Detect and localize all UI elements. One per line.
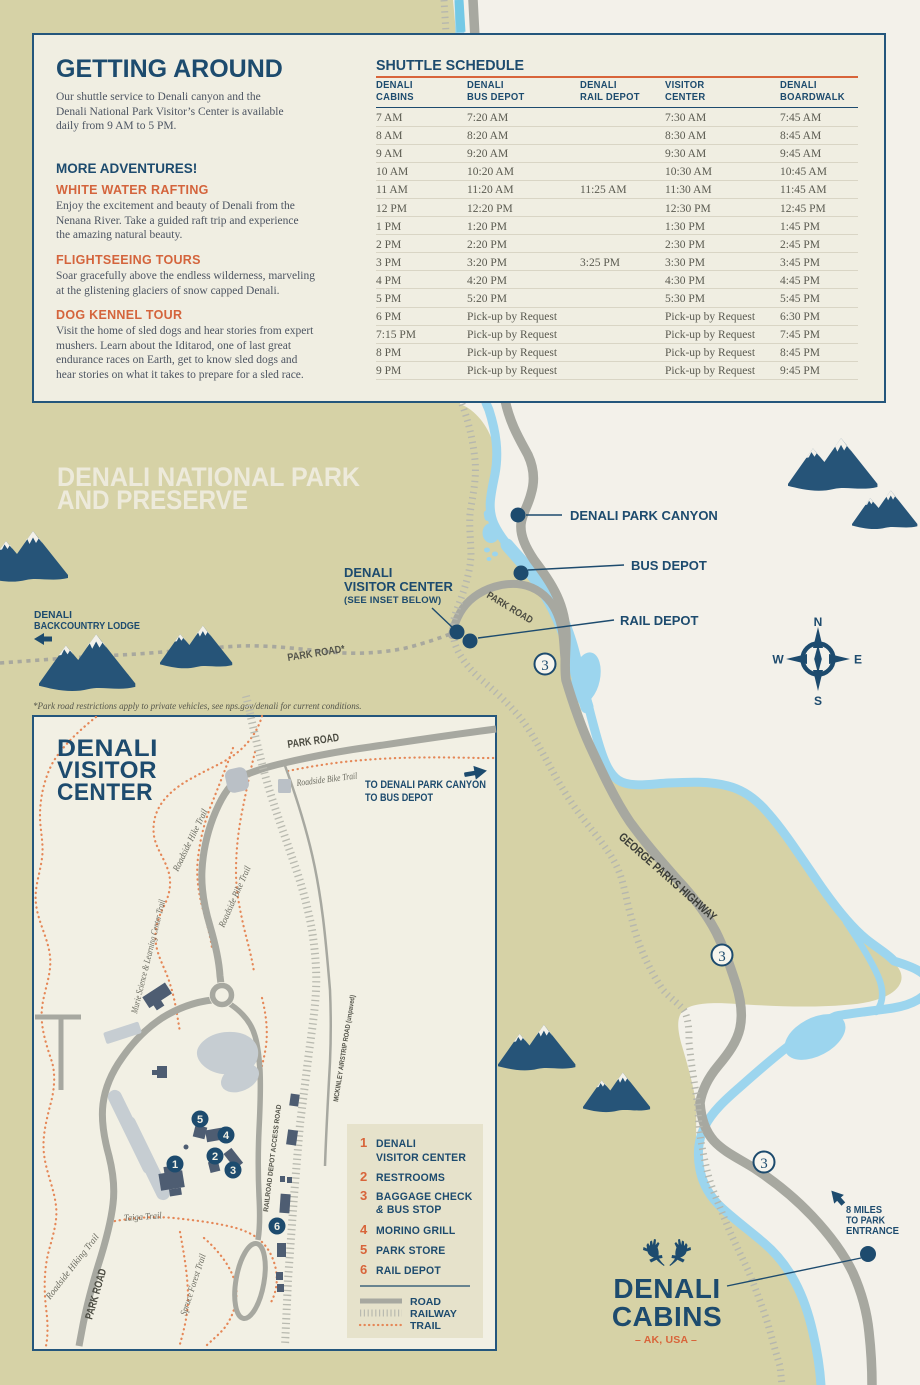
svg-text:CABINS: CABINS: [612, 1301, 722, 1332]
svg-text:N: N: [814, 615, 823, 629]
svg-text:TO BUS DEPOT: TO BUS DEPOT: [365, 792, 433, 804]
svg-text:4: 4: [223, 1130, 230, 1142]
svg-text:TRAIL: TRAIL: [410, 1320, 441, 1332]
svg-text:& BUS STOP: & BUS STOP: [376, 1204, 442, 1216]
svg-text:*Park road restrictions apply: *Park road restrictions apply to private…: [33, 701, 361, 711]
svg-text:4: 4: [360, 1222, 368, 1237]
svg-text:TO DENALI PARK CANYON: TO DENALI PARK CANYON: [365, 779, 486, 791]
svg-text:5: 5: [360, 1242, 367, 1257]
svg-text:3: 3: [541, 658, 549, 674]
svg-text:BACKCOUNTRY LODGE: BACKCOUNTRY LODGE: [34, 620, 140, 632]
svg-text:CENTER: CENTER: [57, 779, 153, 806]
svg-text:RAIL DEPOT: RAIL DEPOT: [376, 1265, 441, 1277]
svg-text:BUS DEPOT: BUS DEPOT: [631, 558, 707, 573]
svg-text:3: 3: [230, 1165, 236, 1177]
svg-text:3: 3: [760, 1156, 768, 1172]
svg-text:RESTROOMS: RESTROOMS: [376, 1172, 445, 1184]
svg-text:3: 3: [360, 1188, 367, 1203]
svg-text:ROAD: ROAD: [410, 1296, 441, 1308]
svg-text:RAILWAY: RAILWAY: [410, 1308, 457, 1320]
svg-text:1: 1: [360, 1135, 367, 1150]
svg-text:VISITOR CENTER: VISITOR CENTER: [376, 1152, 466, 1164]
svg-text:ENTRANCE: ENTRANCE: [846, 1225, 899, 1237]
svg-text:BAGGAGE CHECK: BAGGAGE CHECK: [376, 1191, 473, 1203]
svg-text:(SEE INSET BELOW): (SEE INSET BELOW): [344, 595, 441, 606]
svg-text:PARK STORE: PARK STORE: [376, 1245, 445, 1257]
svg-text:MORINO GRILL: MORINO GRILL: [376, 1225, 456, 1237]
svg-text:6: 6: [360, 1262, 367, 1277]
svg-text:DENALI: DENALI: [344, 565, 392, 580]
svg-text:E: E: [854, 653, 862, 667]
svg-text:W: W: [772, 653, 784, 667]
svg-text:6: 6: [274, 1221, 280, 1233]
svg-text:DENALI: DENALI: [376, 1138, 416, 1150]
svg-text:S: S: [814, 694, 822, 708]
svg-text:3: 3: [718, 949, 726, 965]
svg-text:VISITOR CENTER: VISITOR CENTER: [344, 579, 453, 594]
svg-text:1: 1: [172, 1159, 178, 1171]
svg-text:AND PRESERVE: AND PRESERVE: [57, 485, 248, 515]
svg-text:5: 5: [197, 1114, 203, 1126]
svg-text:DENALI: DENALI: [613, 1273, 720, 1304]
svg-text:RAIL DEPOT: RAIL DEPOT: [620, 613, 699, 628]
svg-text:2: 2: [360, 1169, 367, 1184]
svg-text:– AK, USA –: – AK, USA –: [635, 1334, 697, 1346]
svg-text:DENALI PARK CANYON: DENALI PARK CANYON: [570, 508, 718, 523]
svg-text:2: 2: [212, 1151, 218, 1163]
